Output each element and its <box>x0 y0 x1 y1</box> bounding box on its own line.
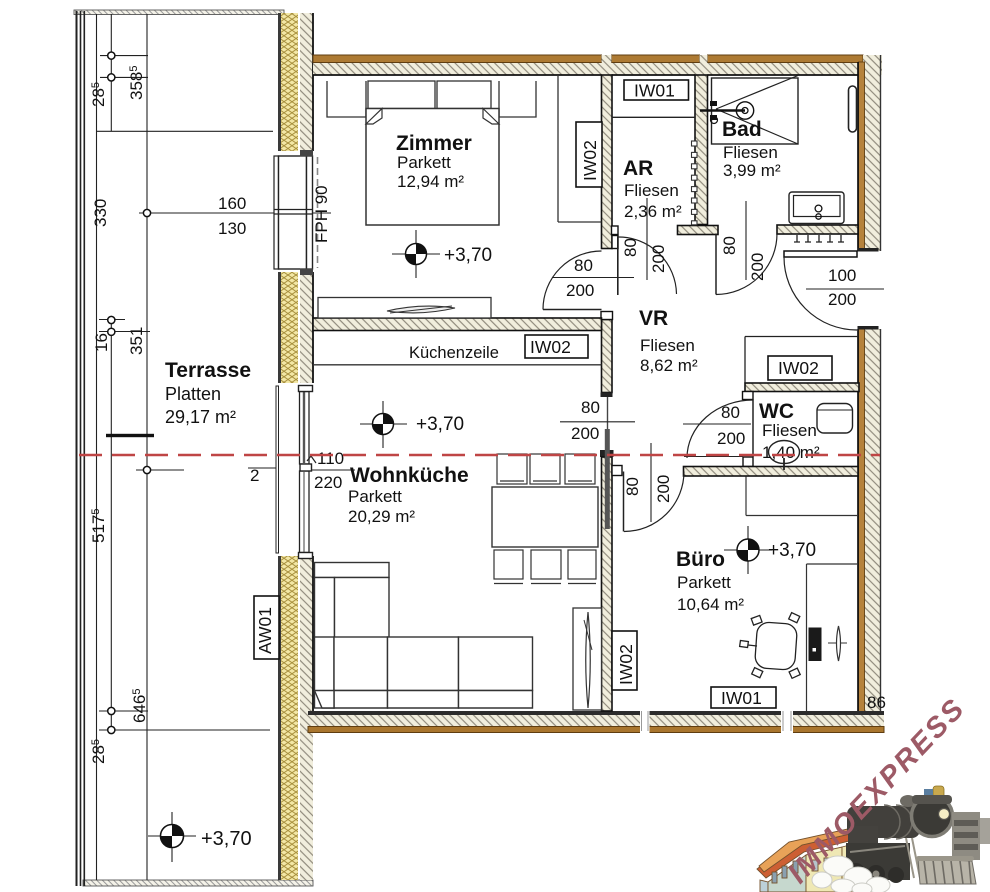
svg-text:Parkett: Parkett <box>677 573 731 592</box>
svg-text:Fliesen: Fliesen <box>762 421 817 440</box>
svg-text:330: 330 <box>91 199 110 227</box>
svg-text:8,62 m²: 8,62 m² <box>640 356 698 375</box>
svg-text:AW01: AW01 <box>255 607 275 654</box>
svg-text:WC: WC <box>759 400 794 423</box>
svg-text:Büro: Büro <box>676 548 725 571</box>
svg-text:3,99 m²: 3,99 m² <box>723 161 781 180</box>
svg-text:200: 200 <box>828 290 856 309</box>
svg-text:220: 220 <box>314 473 342 492</box>
svg-text:80: 80 <box>721 403 740 422</box>
svg-text:80: 80 <box>621 238 640 257</box>
svg-text:+3,70: +3,70 <box>416 414 464 435</box>
svg-text:200: 200 <box>748 253 767 281</box>
svg-text:FPH 90: FPH 90 <box>312 185 331 243</box>
svg-text:200: 200 <box>571 424 599 443</box>
svg-text:351: 351 <box>127 327 146 355</box>
svg-text:200: 200 <box>566 281 594 300</box>
svg-text:Parkett: Parkett <box>348 487 402 506</box>
svg-text:Zimmer: Zimmer <box>396 132 472 155</box>
svg-text:20,29 m²: 20,29 m² <box>348 507 415 526</box>
svg-text:29,17 m²: 29,17 m² <box>165 407 236 427</box>
svg-text:80: 80 <box>720 236 739 255</box>
svg-text:+3,70: +3,70 <box>201 828 252 850</box>
svg-text:160: 160 <box>218 194 246 213</box>
svg-text:1,40 m²: 1,40 m² <box>762 443 820 462</box>
svg-text:12,94 m²: 12,94 m² <box>397 172 464 191</box>
svg-text:Wohnküche: Wohnküche <box>350 464 469 487</box>
svg-text:+3,70: +3,70 <box>768 540 816 561</box>
svg-text:110: 110 <box>317 449 344 468</box>
svg-text:IW01: IW01 <box>634 81 675 101</box>
svg-text:Bad: Bad <box>722 118 762 141</box>
svg-text:10,64 m²: 10,64 m² <box>677 595 744 614</box>
svg-text:80: 80 <box>574 256 593 275</box>
svg-text:80: 80 <box>623 477 642 496</box>
svg-text:100: 100 <box>828 266 856 285</box>
svg-text:IW02: IW02 <box>616 644 636 685</box>
svg-text:Küchenzeile: Küchenzeile <box>409 344 499 362</box>
svg-text:200: 200 <box>649 245 668 273</box>
svg-text:IW02: IW02 <box>530 337 571 357</box>
svg-text:80: 80 <box>581 398 600 417</box>
svg-text:16: 16 <box>92 333 111 352</box>
svg-text:IW02: IW02 <box>778 358 819 378</box>
svg-text:IW02: IW02 <box>580 140 600 181</box>
svg-text:Terrasse: Terrasse <box>165 359 251 382</box>
svg-text:Platten: Platten <box>165 384 221 404</box>
svg-text:86: 86 <box>867 693 886 712</box>
svg-text:Fliesen: Fliesen <box>624 181 679 200</box>
svg-text:200: 200 <box>717 429 745 448</box>
svg-text:200: 200 <box>654 475 673 503</box>
svg-text:2,36 m²: 2,36 m² <box>624 202 682 221</box>
svg-text:2: 2 <box>250 466 259 485</box>
svg-text:Parkett: Parkett <box>397 153 451 172</box>
svg-text:IW01: IW01 <box>721 688 762 708</box>
svg-text:Fliesen: Fliesen <box>723 143 778 162</box>
svg-text:130: 130 <box>218 219 246 238</box>
svg-text:Fliesen: Fliesen <box>640 336 695 355</box>
svg-text:+3,70: +3,70 <box>444 245 492 266</box>
svg-text:AR: AR <box>623 157 653 180</box>
svg-text:VR: VR <box>639 307 668 330</box>
